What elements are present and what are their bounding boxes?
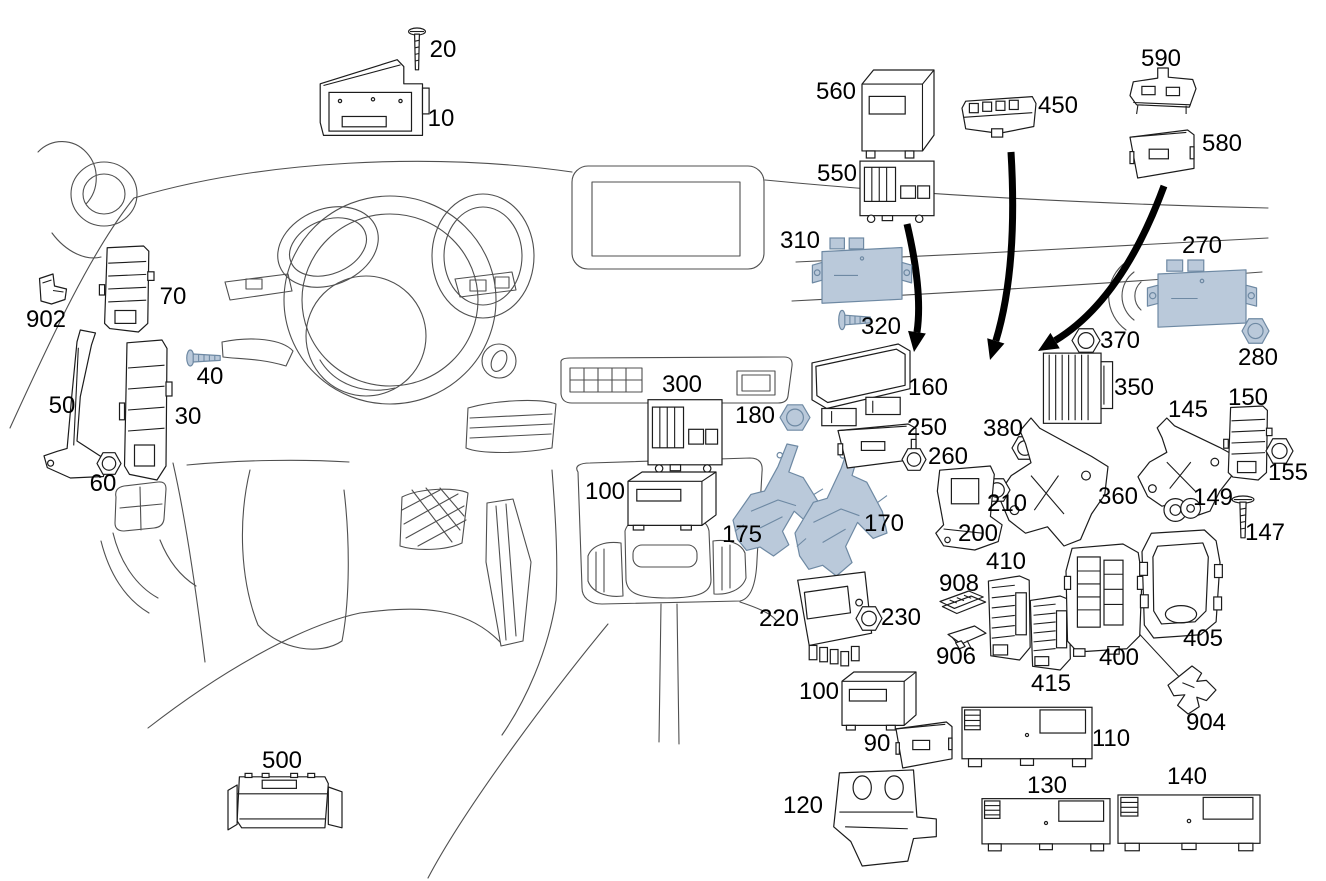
- sketch-line: [592, 182, 740, 256]
- part-glyph-500: [228, 773, 342, 829]
- part-label-70[interactable]: 70: [160, 283, 187, 310]
- part-glyph-110: [962, 707, 1092, 766]
- sketch-line: [713, 541, 746, 595]
- part-label-147[interactable]: 147: [1245, 519, 1285, 546]
- sketch-line: [502, 470, 557, 735]
- sketch-line: [284, 196, 496, 404]
- part-label-210[interactable]: 210: [987, 490, 1027, 517]
- part-label-100[interactable]: 100: [799, 678, 839, 705]
- part-label-560[interactable]: 560: [816, 78, 856, 105]
- part-label-350[interactable]: 350: [1114, 374, 1154, 401]
- part-label-149[interactable]: 149: [1193, 484, 1233, 511]
- part-label-130[interactable]: 130: [1027, 772, 1067, 799]
- part-label-10[interactable]: 10: [428, 105, 455, 132]
- part-label-155[interactable]: 155: [1268, 459, 1308, 486]
- part-label-400[interactable]: 400: [1099, 644, 1139, 671]
- sketch-line: [482, 344, 516, 378]
- part-glyph-300: [648, 400, 722, 473]
- part-label-100[interactable]: 100: [585, 478, 625, 505]
- part-label-50[interactable]: 50: [49, 392, 76, 419]
- part-label-500[interactable]: 500: [262, 747, 302, 774]
- part-glyph-400: [1064, 544, 1143, 656]
- part-label-410[interactable]: 410: [986, 548, 1026, 575]
- part-label-908[interactable]: 908: [939, 570, 979, 597]
- part-label-380[interactable]: 380: [983, 415, 1023, 442]
- part-label-415[interactable]: 415: [1031, 670, 1071, 697]
- part-glyph-280: [1242, 319, 1269, 343]
- part-label-140[interactable]: 140: [1167, 763, 1207, 790]
- part-glyph-580: [1130, 130, 1194, 178]
- part-label-310[interactable]: 310: [780, 227, 820, 254]
- part-glyph-415: [1030, 596, 1070, 670]
- flow-arrow-middle: [987, 152, 1012, 360]
- part-glyph-550: [860, 161, 934, 222]
- parts-diagram-canvas: 2010902704050306030010018017517056055045…: [0, 0, 1326, 881]
- part-label-200[interactable]: 200: [958, 520, 998, 547]
- parts-diagram-page: 2010902704050306030010018017517056055045…: [0, 0, 1326, 881]
- sketch-line: [588, 543, 623, 597]
- part-glyph-260: [902, 449, 926, 471]
- sketch-line: [1122, 272, 1134, 320]
- part-glyph-130: [982, 799, 1110, 851]
- part-glyph-230: [856, 607, 882, 631]
- sketch-line: [242, 470, 348, 649]
- flow-arrow-left: [907, 224, 926, 352]
- part-glyph-410: [988, 576, 1030, 660]
- sketch-line: [52, 233, 101, 258]
- sketch-line: [360, 609, 500, 642]
- part-glyph-90: [896, 722, 952, 768]
- part-label-145[interactable]: 145: [1168, 396, 1208, 423]
- sketch-line: [737, 371, 775, 395]
- sketch-line: [83, 174, 125, 214]
- part-label-230[interactable]: 230: [881, 604, 921, 631]
- part-glyph-902: [40, 274, 67, 304]
- part-label-405[interactable]: 405: [1183, 625, 1223, 652]
- part-glyph-150: [1224, 406, 1272, 480]
- sketch-line: [246, 279, 262, 289]
- sketch-line: [38, 142, 96, 204]
- part-glyph-100: [628, 472, 716, 530]
- part-label-300[interactable]: 300: [662, 371, 702, 398]
- sketch-line: [101, 533, 196, 613]
- part-glyph-10: [320, 60, 429, 136]
- part-label-220[interactable]: 220: [759, 605, 799, 632]
- sketch-line: [302, 214, 478, 386]
- part-label-360[interactable]: 360: [1098, 483, 1138, 510]
- sketch-line: [225, 274, 292, 300]
- part-label-60[interactable]: 60: [90, 470, 117, 497]
- sketch-line: [222, 339, 293, 366]
- sketch-line: [428, 624, 608, 878]
- part-glyph-270: [1147, 260, 1256, 327]
- part-glyph-560: [862, 70, 934, 158]
- sketch-line: [486, 499, 531, 646]
- part-label-320[interactable]: 320: [861, 313, 901, 340]
- part-label-90[interactable]: 90: [864, 730, 891, 757]
- part-label-260[interactable]: 260: [928, 443, 968, 470]
- sketch-line: [1135, 282, 1141, 310]
- part-label-370[interactable]: 370: [1100, 327, 1140, 354]
- part-glyph-120: [834, 770, 937, 866]
- part-glyph-310: [812, 238, 911, 303]
- part-label-150[interactable]: 150: [1228, 384, 1268, 411]
- part-label-450[interactable]: 450: [1038, 92, 1078, 119]
- part-label-110[interactable]: 110: [1092, 725, 1130, 752]
- sketch-line: [488, 348, 510, 374]
- sketch-line: [470, 414, 552, 438]
- part-glyph-180: [780, 405, 810, 430]
- sketch-line: [10, 161, 572, 428]
- part-label-906[interactable]: 906: [936, 643, 976, 670]
- sketch-line: [115, 482, 166, 531]
- sketch-line: [266, 192, 391, 301]
- part-label-180[interactable]: 180: [735, 402, 775, 429]
- sketch-line: [659, 604, 679, 744]
- part-label-590[interactable]: 590: [1141, 45, 1181, 72]
- part-glyph-100: [842, 672, 916, 730]
- sketch-line: [633, 545, 697, 567]
- part-glyph-590: [1130, 68, 1196, 114]
- sketch-line: [173, 463, 205, 662]
- sketch-line: [570, 368, 642, 392]
- sketch-line: [148, 613, 360, 728]
- part-label-250[interactable]: 250: [907, 414, 947, 441]
- part-label-40[interactable]: 40: [197, 363, 224, 390]
- part-label-902[interactable]: 902: [26, 306, 66, 333]
- part-glyph-160: [812, 344, 910, 426]
- part-glyph-20: [409, 28, 426, 70]
- part-label-20[interactable]: 20: [430, 36, 457, 63]
- sketch-line: [306, 276, 426, 396]
- part-glyph-30: [120, 340, 173, 480]
- part-label-550[interactable]: 550: [817, 160, 857, 187]
- part-label-270[interactable]: 270: [1182, 232, 1222, 259]
- part-label-580[interactable]: 580: [1202, 130, 1242, 157]
- part-label-280[interactable]: 280: [1238, 344, 1278, 371]
- part-label-175[interactable]: 175: [722, 521, 762, 548]
- part-label-120[interactable]: 120: [783, 792, 823, 819]
- part-label-170[interactable]: 170: [864, 510, 904, 537]
- part-glyph-370: [1072, 329, 1100, 353]
- part-label-904[interactable]: 904: [1186, 709, 1226, 736]
- part-label-160[interactable]: 160: [908, 374, 948, 401]
- part-glyph-140: [1118, 795, 1260, 851]
- part-glyph-350: [1043, 353, 1112, 423]
- sketch-line: [187, 460, 349, 465]
- part-glyph-450: [962, 97, 1036, 137]
- part-glyph-70: [99, 246, 154, 332]
- part-glyph-405: [1140, 530, 1223, 638]
- sketch-line: [71, 162, 137, 226]
- part-label-30[interactable]: 30: [175, 403, 202, 430]
